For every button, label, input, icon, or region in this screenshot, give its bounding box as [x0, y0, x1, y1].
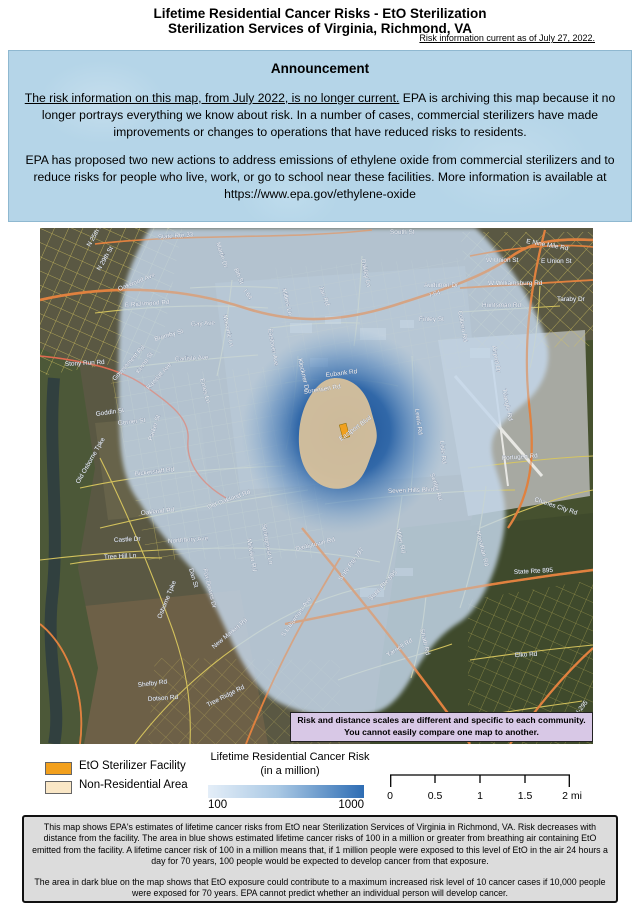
- announcement-box: Announcement The risk information on thi…: [8, 50, 632, 222]
- risk-gradient-bar: [208, 785, 364, 798]
- map-description-box: This map shows EPA's estimates of lifeti…: [22, 815, 618, 903]
- risk-current-note: Risk information current as of July 27, …: [419, 33, 595, 43]
- epa-risk-map-page: Lifetime Residential Cancer Risks - EtO …: [0, 0, 640, 905]
- road-label: W Williamsburg Rd: [488, 280, 543, 287]
- james-river: [51, 378, 57, 744]
- announcement-underlined-sentence: The risk information on this map, from J…: [25, 91, 400, 105]
- scale-warning-line2: You cannot easily compare one map to ano…: [291, 726, 592, 738]
- map-canvas: State Rte 33 I-64 I-64 Martin Dr 8th St …: [40, 228, 593, 744]
- non-residential-swatch: [45, 781, 72, 794]
- non-residential-label: Non-Residential Area: [79, 779, 188, 791]
- road-label: Audubon Dr: [424, 282, 459, 289]
- road-label: Huntsman Rd: [482, 302, 522, 309]
- legend: EtO Sterilizer Facility Non-Residential …: [0, 748, 640, 812]
- scalebar-tick-4: 2 mi: [557, 790, 587, 802]
- risk-map: State Rte 33 I-64 I-64 Martin Dr 8th St …: [40, 228, 593, 744]
- announcement-paragraph-2: EPA has proposed two new actions to addr…: [17, 152, 623, 202]
- scalebar-tick-0: 0: [375, 790, 405, 802]
- scale-warning-note: Risk and distance scales are different a…: [290, 712, 593, 742]
- road-label: Castle Dr: [114, 536, 142, 544]
- road-label: South St: [390, 229, 415, 236]
- road-label: E Union St: [541, 258, 572, 265]
- road-label: Gay Ave: [191, 320, 216, 328]
- scalebar-tick-1: 0.5: [420, 790, 450, 802]
- facility-label: EtO Sterilizer Facility: [79, 760, 186, 772]
- scalebar-tick-2: 1: [465, 790, 495, 802]
- announcement-paragraph-1: The risk information on this map, from J…: [22, 90, 618, 140]
- road-label: Elko Rd: [515, 651, 538, 659]
- risk-scale-max: 1000: [330, 799, 364, 811]
- road-label: W Union St: [486, 257, 519, 264]
- road-label: Taraby Dr: [557, 296, 586, 303]
- scale-warning-line1: Risk and distance scales are different a…: [291, 714, 592, 726]
- risk-legend-title: Lifetime Residential Cancer Risk: [192, 751, 388, 763]
- risk-legend-subtitle: (in a million): [192, 765, 388, 777]
- map-description-paragraph-2: The area in dark blue on the map shows t…: [32, 877, 608, 900]
- scalebar-tick-3: 1.5: [510, 790, 540, 802]
- map-description-paragraph-1: This map shows EPA's estimates of lifeti…: [32, 822, 608, 868]
- page-title: Lifetime Residential Cancer Risks - EtO …: [0, 6, 640, 21]
- distance-scalebar: [390, 772, 575, 788]
- announcement-heading: Announcement: [9, 61, 631, 76]
- road-label: Finley St: [419, 316, 444, 323]
- risk-scale-min: 100: [208, 799, 227, 811]
- facility-swatch: [45, 762, 72, 775]
